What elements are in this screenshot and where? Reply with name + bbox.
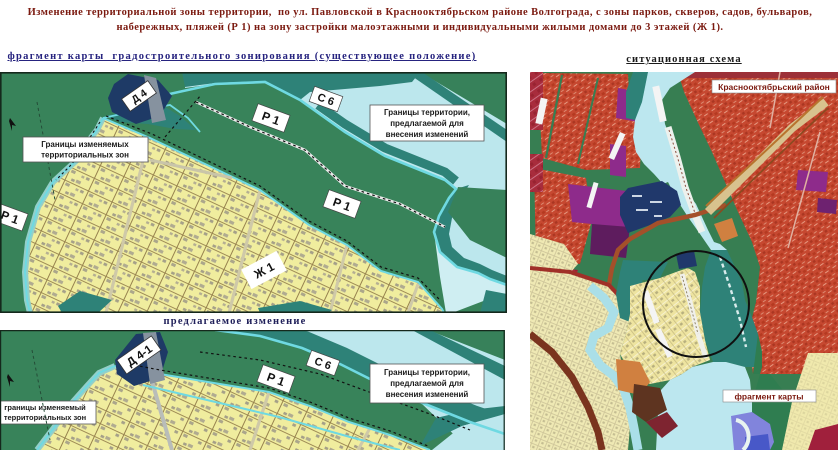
svg-text:фрагмент карты: фрагмент карты xyxy=(734,392,803,402)
svg-text:предлагаемой для: предлагаемой для xyxy=(390,119,464,128)
svg-text:предлагаемой для: предлагаемой для xyxy=(390,379,464,388)
svg-text:территориальных зон: территориальных зон xyxy=(41,151,129,160)
svg-text:Границы территории,: Границы территории, xyxy=(384,368,470,377)
svg-text:границы изменяемый: границы изменяемый xyxy=(4,403,86,412)
svg-text:Краснооктябрьский район: Краснооктябрьский район xyxy=(718,82,830,92)
svg-text:Границы изменяемых: Границы изменяемых xyxy=(41,140,129,149)
svg-text:Границы территории,: Границы территории, xyxy=(384,108,470,117)
svg-text:внесения изменений: внесения изменений xyxy=(386,390,469,399)
svg-text:внесения изменений: внесения изменений xyxy=(386,130,469,139)
